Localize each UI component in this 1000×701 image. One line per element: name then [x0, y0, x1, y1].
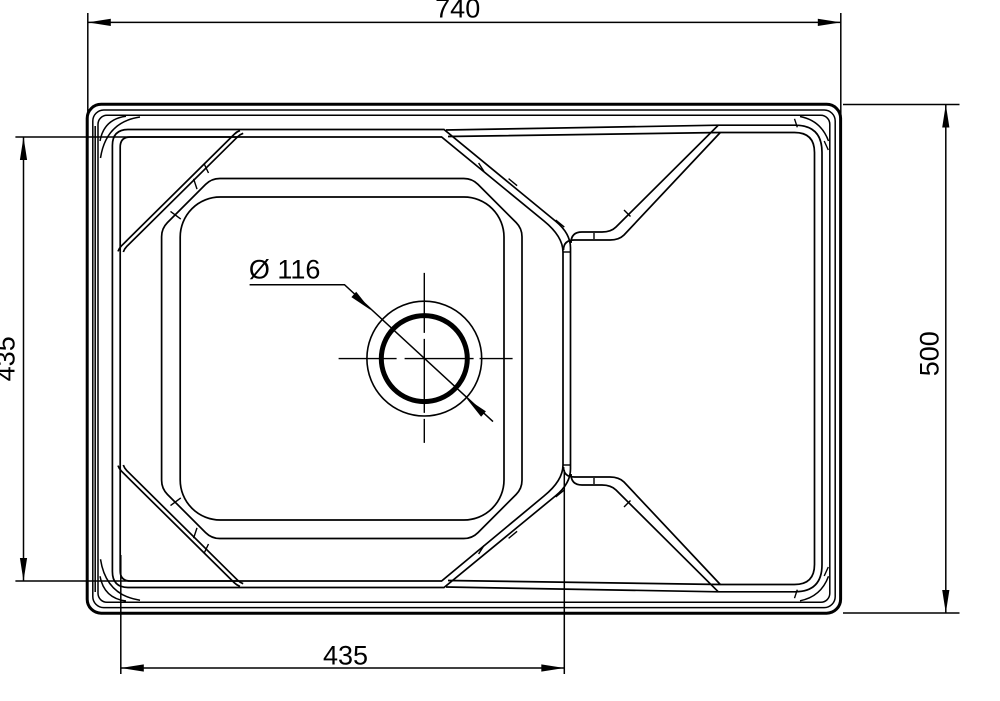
svg-text:500: 500 — [914, 331, 944, 376]
svg-text:435: 435 — [323, 641, 368, 671]
svg-text:740: 740 — [435, 0, 480, 24]
svg-text:435: 435 — [0, 336, 21, 381]
svg-text:Ø 116: Ø 116 — [249, 254, 321, 284]
